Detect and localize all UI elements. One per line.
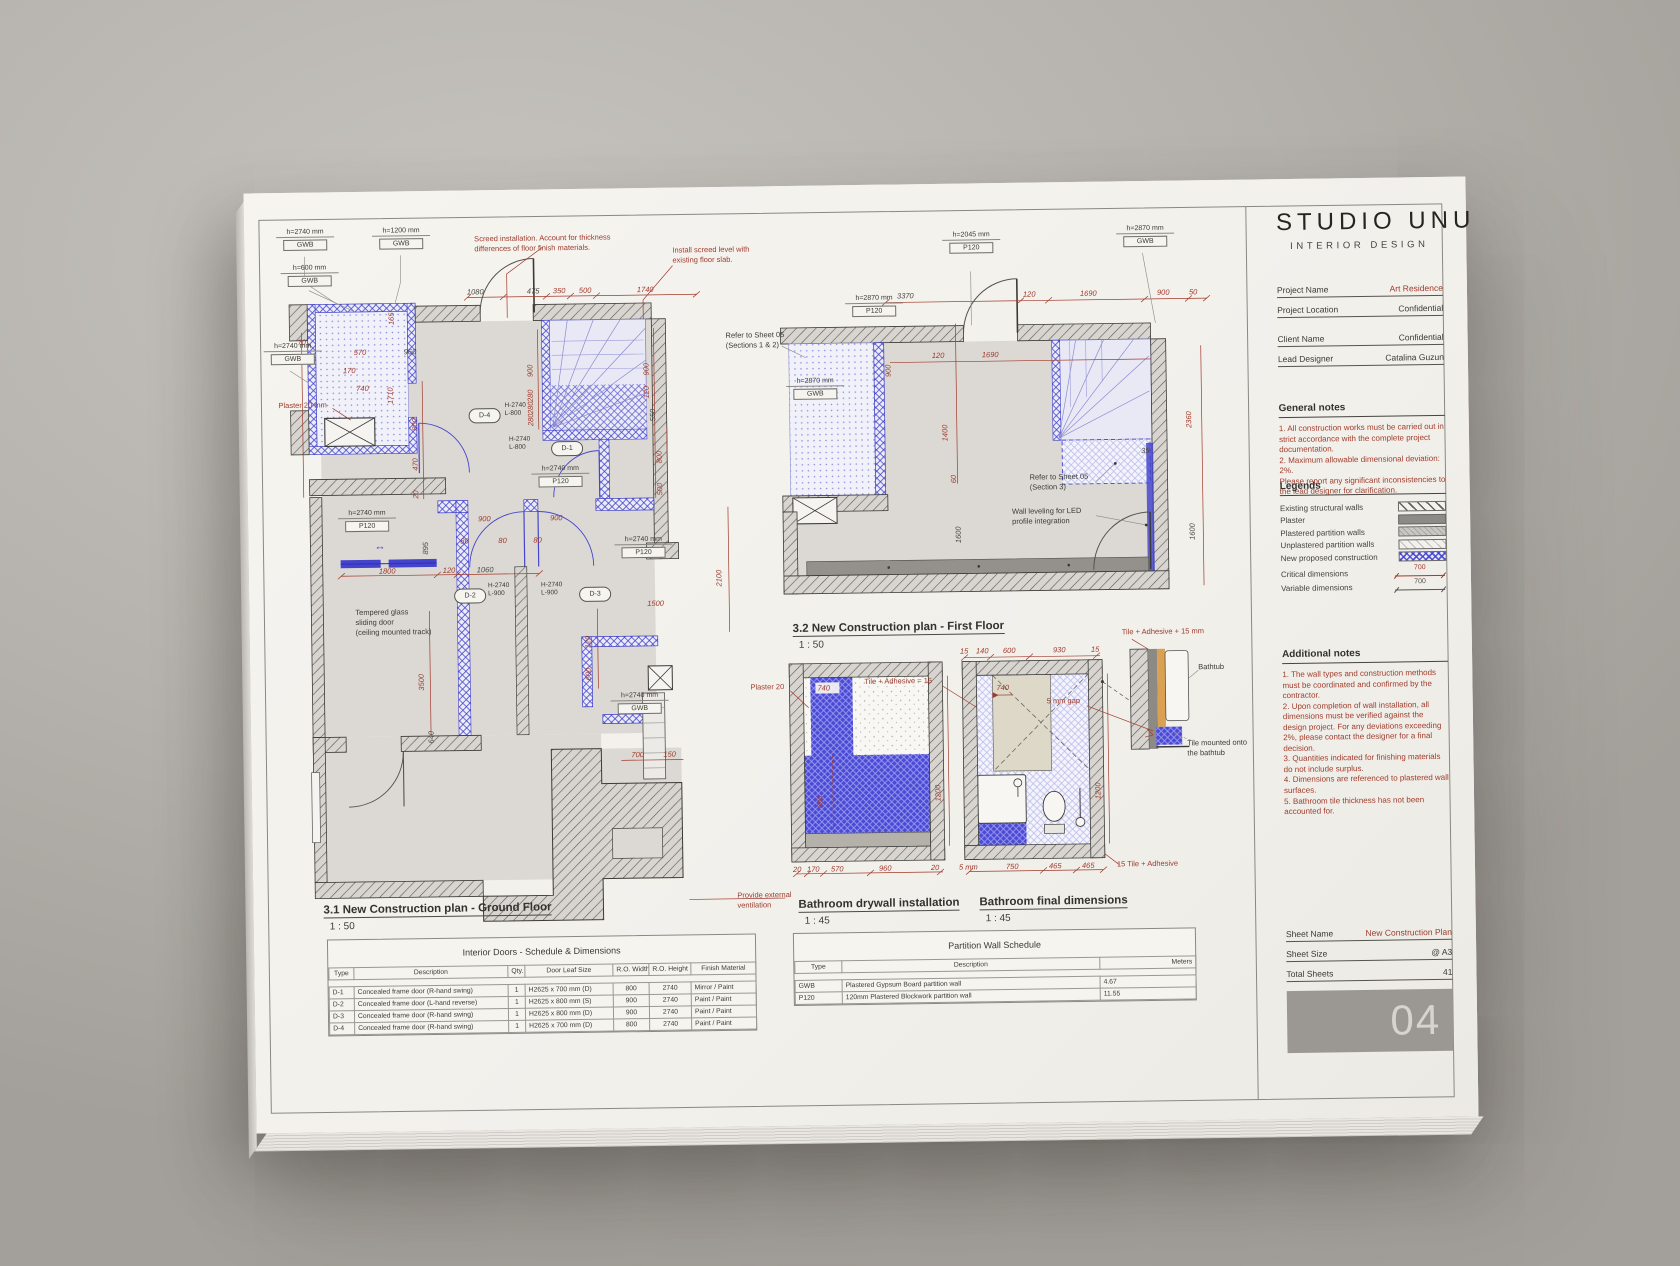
- bath-final-title: Bathroom final dimensions: [979, 894, 1127, 910]
- dim-label: 70: [298, 339, 306, 347]
- dim-label: 900: [478, 515, 491, 523]
- note-tile-adhesive-eq: Tile + Adhesive = 15: [864, 676, 932, 687]
- dim-label: 170: [807, 866, 820, 874]
- legend-new-construction: New proposed construction: [1281, 550, 1447, 565]
- dim-label: 1740: [637, 286, 654, 294]
- cell: D-4: [330, 1023, 355, 1035]
- dim-label: 740: [817, 684, 830, 692]
- cell: R.O. Height: [649, 963, 691, 976]
- cell: GWB: [795, 980, 842, 993]
- dim-label: 1060: [477, 566, 494, 574]
- dim-label: 280: [527, 414, 535, 427]
- first-floor-plan-drawing: [780, 276, 1214, 594]
- dim-label: 1200: [1094, 782, 1102, 799]
- dim-label: 600: [816, 796, 824, 809]
- cell: R.O. Width: [613, 963, 649, 976]
- note-refer-sections-1-2: Refer to Sheet 05 (Sections 1 & 2): [725, 330, 784, 350]
- legend-variable-dimensions: Variable dimensions 700: [1281, 579, 1447, 595]
- dim-label: 500: [579, 287, 592, 295]
- cell: Concealed frame door (R-hand swing): [355, 1020, 509, 1034]
- cell: 1: [508, 996, 525, 1008]
- dim-label: 465: [1049, 862, 1062, 870]
- ground-plan-scale: 1 : 50: [330, 921, 355, 932]
- dim-label: 2360: [1185, 411, 1193, 428]
- door-size-label: H-2740 L-900: [488, 582, 510, 598]
- dim-label: 60: [950, 475, 958, 483]
- unplastered-swatch-icon: [1398, 539, 1446, 550]
- dimension-legends: Critical dimensions 700 Variable dimensi…: [1281, 565, 1447, 595]
- dim-label: 80: [533, 536, 541, 544]
- height-tag: h=2740 mmP120: [614, 536, 672, 559]
- cell: Type: [329, 968, 354, 980]
- additional-notes-title: Additional notes: [1282, 647, 1448, 664]
- dim-label: 80: [460, 537, 468, 545]
- dim-label: 470: [412, 458, 420, 471]
- dim-label: 5 mm: [959, 863, 978, 871]
- cell: 800: [613, 982, 649, 995]
- field-sheet-name: Sheet Name New Construction Plan: [1286, 927, 1452, 942]
- door-mark-d4: D-4: [469, 408, 501, 423]
- dim-label: 500: [656, 483, 664, 496]
- note-screed: Screed installation. Account for thickne…: [474, 232, 611, 253]
- dim-label: 150: [663, 751, 676, 759]
- cell: 1: [508, 984, 525, 996]
- dim-label: 350: [553, 287, 566, 295]
- dim-label: 475: [527, 287, 540, 295]
- height-tag: h=2740 mmP120: [531, 465, 589, 488]
- sliding-direction-icon: ↔: [374, 542, 385, 553]
- cell: P120: [795, 992, 842, 1005]
- height-tag: h=600 mmGWB: [280, 264, 338, 287]
- field-total-sheets: Total Sheets 41: [1286, 967, 1452, 982]
- cell: Mirror / Paint: [691, 981, 756, 994]
- legends: Legends Existing structural walls Plaste…: [1280, 479, 1447, 565]
- height-tag: h=2740 mmGWB: [276, 228, 334, 251]
- note-external-ventilation: Provide external ventilation: [737, 890, 791, 910]
- bath-drywall-scale: 1 : 45: [805, 915, 830, 926]
- dim-label: 900: [526, 365, 534, 378]
- project-fields: Project Name Art Residence Project Locat…: [1277, 283, 1444, 374]
- first-plan-title: 3.2 New Construction plan - First Floor: [793, 620, 1005, 637]
- door-mark-d2: D-2: [454, 588, 486, 603]
- dim-label: 740: [356, 385, 369, 393]
- dim-label: 20: [931, 864, 939, 872]
- cell: D-2: [329, 999, 354, 1011]
- note-tempered-glass: Tempered glass sliding door (ceiling mou…: [355, 607, 431, 637]
- note-bathtub: Bathtub: [1198, 662, 1224, 672]
- cell: Paint / Paint: [691, 993, 756, 1006]
- field-client-name: Client Name Confidential: [1278, 332, 1444, 347]
- dim-label: 900: [1157, 289, 1170, 297]
- dim-label: 1800: [379, 567, 396, 575]
- cell: 2740: [649, 994, 691, 1007]
- note-5mm-gap: 5 mm gap: [1047, 696, 1080, 706]
- cell: 800: [614, 1018, 650, 1031]
- dim-label: 750: [1006, 863, 1019, 871]
- height-tag: h=1200 mmGWB: [372, 227, 430, 250]
- bathroom-final-drawing: [961, 653, 1110, 875]
- dim-label: 1690: [1080, 290, 1097, 298]
- dim-label: 120: [584, 636, 592, 649]
- hatch-swatch-icon: [1398, 501, 1446, 512]
- cell: 1: [508, 1008, 525, 1020]
- bath-final-scale: 1 : 45: [986, 913, 1011, 924]
- dim-label: 140: [976, 647, 989, 655]
- dim-label: 1400: [941, 425, 949, 442]
- dim-label: 120: [1023, 291, 1036, 299]
- dim-label: 930: [1053, 646, 1066, 654]
- dim-label: 1600: [1189, 523, 1197, 540]
- bathroom-drywall-drawing: [789, 662, 950, 877]
- field-lead-designer: Lead Designer Catalina Guzun: [1278, 352, 1444, 367]
- dim-label: 50: [1189, 288, 1197, 296]
- critical-dimension-icon: 700: [1393, 566, 1447, 579]
- door-mark-d1: D-1: [551, 441, 583, 456]
- cell: 2740: [650, 1018, 692, 1031]
- legends-title: Legends: [1280, 479, 1446, 496]
- dim-label: 120: [643, 386, 651, 399]
- dim-label: 900: [642, 363, 650, 376]
- first-plan-scale: 1 : 50: [799, 640, 824, 651]
- door-mark-d3: D-3: [579, 586, 611, 601]
- note-tile-mounted: Tile mounted onto the bathtub: [1187, 738, 1247, 758]
- note-refer-section-3: Refer to Sheet 05 (Section 3): [1029, 472, 1088, 492]
- note-plaster-20: Plaster 20: [750, 682, 784, 692]
- door-size-label: H-2740 L-800: [509, 436, 531, 452]
- dim-label: 800: [656, 451, 664, 464]
- cell: 1: [509, 1020, 526, 1032]
- dim-label: 465: [1082, 862, 1095, 870]
- field-project-location: Project Location Confidential: [1277, 303, 1443, 318]
- drawing-sheet: 3.1 New Construction plan - Ground Floor…: [243, 177, 1478, 1134]
- dim-label: 1080: [467, 288, 484, 296]
- note-led-leveling: Wall leveling for LED profile integratio…: [1012, 506, 1082, 526]
- dim-label: 2100: [715, 570, 723, 587]
- dim-label: 15: [1091, 646, 1099, 654]
- height-tag: h=2870 mmP120: [845, 294, 903, 317]
- cell: Paint / Paint: [692, 1017, 757, 1030]
- cell: Paint / Paint: [691, 1005, 756, 1018]
- dim-label: 120: [443, 567, 456, 575]
- dim-label: 1500: [647, 600, 664, 608]
- dim-label: 165: [388, 312, 396, 325]
- height-tag: h=2740 mmP120: [338, 509, 396, 532]
- dim-label: 20: [412, 490, 420, 498]
- sheet-info: Sheet Name New Construction Plan Sheet S…: [1286, 927, 1453, 989]
- cell: H2625 x 700 mm (D): [526, 1019, 614, 1032]
- dim-label: 900: [550, 514, 563, 522]
- cell: Finish Material: [691, 962, 756, 975]
- dim-label: 20: [793, 866, 801, 874]
- height-tag: h=2870 mmGWB: [1116, 225, 1174, 248]
- dim-label: 570: [831, 865, 844, 873]
- cell: 900: [613, 1006, 649, 1019]
- field-project-name: Project Name Art Residence: [1277, 283, 1443, 298]
- note-15-tile-adhesive: 15 Tile + Adhesive: [1117, 859, 1178, 870]
- additional-notes-body: 1. The wall types and construction metho…: [1282, 668, 1450, 818]
- dim-label: 800: [411, 418, 419, 431]
- dim-label: 960: [879, 865, 892, 873]
- dim-label: 550: [649, 409, 657, 422]
- note-screed-level: Install screed level with existing floor…: [672, 245, 749, 266]
- cell: 2740: [649, 1006, 691, 1019]
- height-tag: h=2740 mmGWB: [610, 692, 668, 715]
- dim-label: 960: [404, 348, 417, 356]
- cell: 11.55: [1100, 987, 1196, 1000]
- sheet-number-block: 04: [1287, 989, 1454, 1053]
- field-sheet-size: Sheet Size @ A3: [1286, 947, 1452, 962]
- note-plaster-20mm: Plaster 20 mm: [278, 400, 326, 410]
- cell: 900: [613, 994, 649, 1007]
- studio-tagline: INTERIOR DESIGN: [1276, 239, 1442, 252]
- dim-label: 1710: [387, 387, 395, 404]
- dim-label: 120: [932, 352, 945, 360]
- dim-label: 900: [884, 365, 892, 378]
- dim-label: 1600: [955, 526, 963, 543]
- dim-label: 895: [422, 542, 430, 555]
- cell: Qty.: [508, 965, 525, 977]
- door-size-label: H-2740 L-800: [504, 402, 526, 418]
- variable-dimension-icon: 700: [1393, 580, 1447, 593]
- cell: Type: [795, 961, 842, 974]
- additional-notes: Additional notes 1. The wall types and c…: [1282, 647, 1450, 818]
- brand-block: STUDIO UNU INTERIOR DESIGN: [1276, 207, 1443, 252]
- dim-label: 570: [354, 349, 367, 357]
- dim-label: 15: [960, 648, 968, 656]
- bath-drywall-title: Bathroom drywall installation: [798, 897, 959, 913]
- cell: D-1: [329, 987, 354, 999]
- dim-label: 80: [498, 537, 506, 545]
- dim-label: 740: [996, 684, 1009, 692]
- dim-label: 700: [631, 751, 644, 759]
- dim-label: 600: [1003, 647, 1016, 655]
- height-tag: h=2045 mmP120: [942, 231, 1000, 254]
- dim-label: 3370: [897, 292, 914, 300]
- plaster-swatch-icon: [1398, 514, 1446, 525]
- dim-label: 640: [428, 731, 436, 744]
- dim-label: 170: [343, 367, 356, 375]
- studio-logo: STUDIO UNU: [1276, 207, 1442, 237]
- height-tag: h=2870 mmGWB: [786, 377, 844, 400]
- cell: D-3: [329, 1011, 354, 1023]
- cell: 120mm Plastered Blockwork partition wall: [842, 988, 1100, 1004]
- new-construction-swatch-icon: [1399, 551, 1447, 562]
- plastered-swatch-icon: [1398, 526, 1446, 537]
- partition-wall-table: Partition Wall Schedule Type Description…: [793, 927, 1197, 1006]
- dim-label: 35: [1141, 447, 1149, 455]
- note-tile-adhesive-plus: Tile + Adhesive + 15 mm: [1122, 626, 1204, 637]
- general-notes-title: General notes: [1279, 401, 1445, 418]
- cell: 2740: [649, 982, 691, 995]
- door-size-label: H-2740 L-900: [541, 581, 563, 597]
- height-tag: h=2740 mmGWB: [264, 343, 322, 366]
- dim-label: 1690: [982, 351, 999, 359]
- dim-label: 600: [585, 668, 593, 681]
- sheet-number: 04: [1390, 996, 1441, 1045]
- dim-label: 1200: [934, 785, 942, 802]
- dim-label: 3500: [418, 674, 426, 691]
- interior-doors-table: Interior Doors - Schedule & Dimensions T…: [327, 933, 757, 1036]
